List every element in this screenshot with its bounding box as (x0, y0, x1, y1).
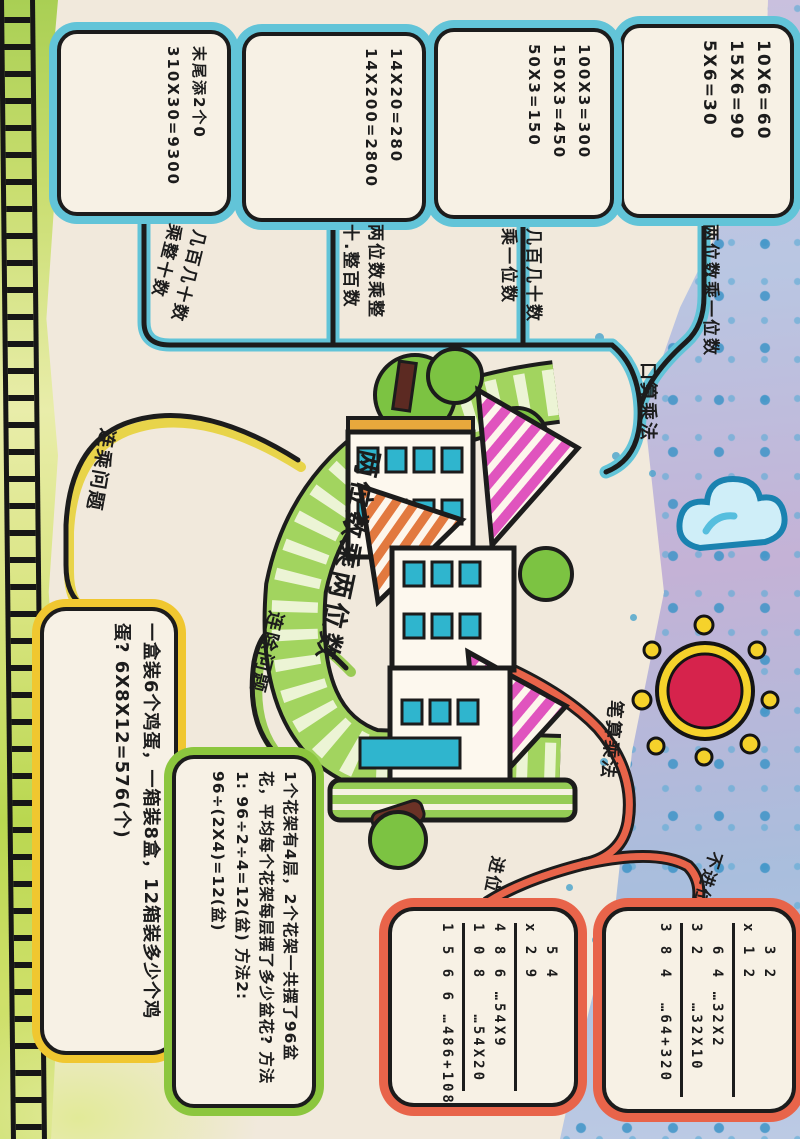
no-carry-example-box: 3 2 x 1 2 6 4 …32X2 3 2 …32X10 3 8 4 …64… (602, 907, 796, 1113)
sun-icon (633, 616, 778, 765)
label-two-digit-by-one: 两位数乘一位数 (700, 224, 725, 384)
math-line: 6 4 …32X2 (709, 923, 725, 1097)
math-line: 4 8 6 …54X9 (491, 923, 507, 1091)
label-two-digit-by-tens: 两位数乘整十.整百数 (340, 224, 390, 336)
math-line: 1 0 8 …54X20 (462, 923, 486, 1091)
math-line: 5 4 (543, 923, 559, 1091)
math-line: x 2 9 (514, 923, 538, 1091)
equation-list: 末尾添2个0 310X30=9300 (61, 34, 227, 212)
equation-list: 14X20=280 14X200=2800 (246, 36, 422, 218)
math-line: 3 2 (761, 923, 777, 1097)
tree-icon (370, 812, 426, 868)
oral-box-two-digit-by-tens: 14X20=280 14X200=2800 (242, 32, 426, 222)
column-multiplication: 5 4 x 2 9 4 8 6 …54X9 1 0 8 …54X20 1 5 6… (392, 911, 574, 1103)
tree-icon (520, 548, 572, 600)
tree-icon (428, 349, 482, 403)
label-hundreds-tens-by-one: 几百几十数乘一位数 (498, 228, 548, 336)
math-line: x 1 2 (732, 923, 756, 1097)
equation-list: 10X6=60 15X6=90 5X6=30 (624, 28, 790, 214)
problem-text: 一盒装6个鸡蛋，一箱装8盒，12箱装多少个鸡蛋? 6X8X12=576(个) (44, 611, 174, 1051)
equation: 310X30=9300 (164, 46, 182, 200)
cloud-icon (679, 479, 784, 548)
carry-example-box: 5 4 x 2 9 4 8 6 …54X9 1 0 8 …54X20 1 5 6… (388, 907, 578, 1107)
mindmap-poster: 10X6=60 15X6=90 5X6=30 100X3=300 150X3=4… (0, 0, 800, 1139)
equation: 14X200=2800 (362, 48, 380, 206)
equation: 末尾添2个0 (189, 46, 210, 200)
math-line: 3 2 …32X10 (680, 923, 704, 1097)
equation: 5X6=30 (699, 40, 719, 202)
oral-box-hundreds-tens-by-one: 100X3=300 150X3=450 50X3=150 (434, 28, 614, 219)
equation: 50X3=150 (525, 44, 543, 203)
equation-list: 100X3=300 150X3=450 50X3=150 (438, 32, 610, 215)
math-line: 1 5 6 6 …486+1080 (439, 923, 455, 1091)
equation: 10X6=60 (753, 40, 773, 202)
label-oral-multiplication: 口算乘法 (636, 362, 662, 466)
equation: 14X20=280 (387, 48, 405, 206)
liancheng-problem-box: 一盒装6个鸡蛋，一箱装8盒，12箱装多少个鸡蛋? 6X8X12=576(个) (40, 607, 178, 1055)
column-multiplication: 3 2 x 1 2 6 4 …32X2 3 2 …32X10 3 8 4 …64… (606, 911, 792, 1109)
platform (330, 780, 575, 820)
math-line: 3 8 4 …64+320 (657, 923, 673, 1097)
equation: 150X3=450 (550, 44, 568, 203)
house-illustration (330, 349, 578, 868)
oral-box-two-digit-by-one: 10X6=60 15X6=90 5X6=30 (620, 24, 794, 218)
oral-box-append-zeros: 末尾添2个0 310X30=9300 (57, 30, 231, 216)
equation: 100X3=300 (575, 44, 593, 203)
lianchu-problem-box: 1个花架有4层，2个花架一共摆了96盆花，平均每个花架每层摆了多少盆花? 方法1… (172, 755, 316, 1108)
problem-text: 1个花架有4层，2个花架一共摆了96盆花，平均每个花架每层摆了多少盆花? 方法1… (176, 759, 312, 1104)
equation: 15X6=90 (726, 40, 746, 202)
